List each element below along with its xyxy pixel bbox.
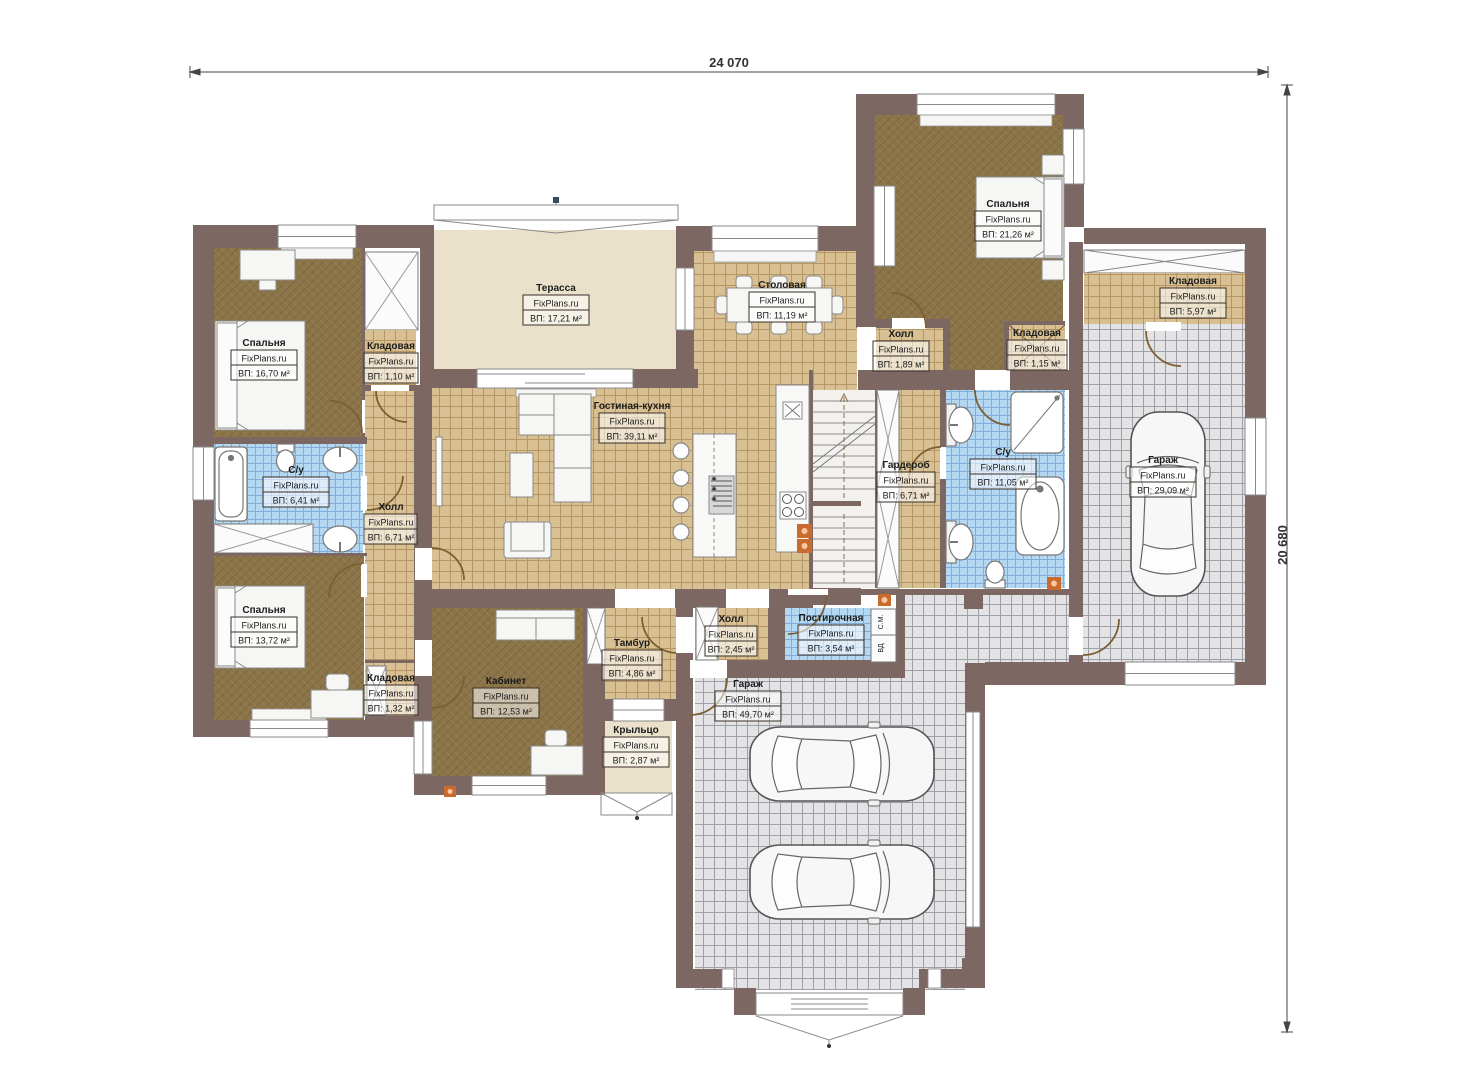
svg-text:ВП: 12,53 м²: ВП: 12,53 м² (480, 707, 532, 717)
svg-text:FixPlans.ru: FixPlans.ru (368, 518, 413, 528)
svg-text:FixPlans.ru: FixPlans.ru (241, 354, 286, 364)
svg-text:ВП: 39,11 м²: ВП: 39,11 м² (606, 432, 657, 442)
svg-text:Тамбур: Тамбур (614, 637, 650, 649)
svg-text:FixPlans.ru: FixPlans.ru (985, 215, 1030, 225)
svg-text:ВП: 11,19 м²: ВП: 11,19 м² (756, 311, 807, 321)
svg-text:FixPlans.ru: FixPlans.ru (1170, 292, 1215, 302)
svg-text:ВП: 6,41 м²: ВП: 6,41 м² (273, 496, 320, 506)
svg-text:FixPlans.ru: FixPlans.ru (368, 357, 413, 367)
svg-text:ВП: 1,15 м²: ВП: 1,15 м² (1014, 359, 1061, 369)
svg-text:ВП: 17,21 м²: ВП: 17,21 м² (530, 314, 582, 324)
svg-text:FixPlans.ru: FixPlans.ru (368, 689, 413, 699)
svg-text:FixPlans.ru: FixPlans.ru (759, 296, 804, 306)
svg-text:Кладовая: Кладовая (367, 341, 415, 352)
svg-text:Гардероб: Гардероб (882, 459, 929, 471)
svg-text:24 070: 24 070 (709, 55, 749, 70)
svg-text:Холл: Холл (378, 502, 403, 513)
svg-text:FixPlans.ru: FixPlans.ru (980, 463, 1025, 473)
svg-text:ВП: 2,45 м²: ВП: 2,45 м² (708, 645, 755, 655)
svg-text:ВП: 3,54 м²: ВП: 3,54 м² (808, 644, 855, 654)
svg-text:Холл: Холл (718, 614, 743, 625)
svg-text:Спальня: Спальня (986, 199, 1029, 210)
svg-text:ВП: 13,72 м²: ВП: 13,72 м² (238, 636, 290, 646)
svg-text:FixPlans.ru: FixPlans.ru (1140, 471, 1185, 481)
svg-text:Спальня: Спальня (242, 605, 285, 616)
svg-text:Крыльцо: Крыльцо (613, 725, 659, 736)
svg-text:С.М.: С.М. (878, 615, 885, 630)
svg-text:ВП: 29,09 м²: ВП: 29,09 м² (1137, 486, 1189, 496)
svg-text:Кладовая: Кладовая (367, 673, 415, 684)
svg-text:С/у: С/у (288, 465, 304, 476)
svg-text:Кабинет: Кабинет (486, 675, 527, 687)
svg-text:ВП: 16,70 м²: ВП: 16,70 м² (238, 369, 290, 379)
svg-text:ВП: 21,26 м²: ВП: 21,26 м² (982, 230, 1034, 240)
svg-text:FixPlans.ru: FixPlans.ru (241, 621, 286, 631)
svg-text:FixPlans.ru: FixPlans.ru (609, 654, 654, 664)
svg-text:FixPlans.ru: FixPlans.ru (483, 692, 528, 702)
svg-text:Спальня: Спальня (242, 338, 285, 349)
svg-text:ВП: 1,89 м²: ВП: 1,89 м² (878, 360, 925, 370)
svg-text:Постирочная: Постирочная (799, 613, 864, 624)
svg-text:FixPlans.ru: FixPlans.ru (725, 695, 770, 705)
svg-text:FixPlans.ru: FixPlans.ru (708, 630, 753, 640)
svg-text:ВП: 1,32 м²: ВП: 1,32 м² (368, 704, 415, 714)
svg-text:ВП: 49,70 м²: ВП: 49,70 м² (722, 710, 774, 720)
svg-text:20 680: 20 680 (1275, 525, 1290, 565)
svg-text:ВП: 1,10 м²: ВП: 1,10 м² (368, 372, 415, 382)
svg-text:FixPlans.ru: FixPlans.ru (1014, 344, 1059, 354)
svg-text:ВП: 11,05 м²: ВП: 11,05 м² (977, 478, 1028, 488)
svg-text:FixPlans.ru: FixPlans.ru (273, 481, 318, 491)
svg-text:С/у: С/у (995, 447, 1011, 458)
svg-text:Кладовая: Кладовая (1013, 328, 1061, 339)
svg-text:Терасса: Терасса (536, 283, 576, 294)
svg-text:ВП: 4,86 м²: ВП: 4,86 м² (609, 669, 656, 679)
svg-text:ВП: 6,71 м²: ВП: 6,71 м² (883, 491, 930, 501)
svg-text:Холл: Холл (888, 329, 913, 340)
svg-text:ВД: ВД (878, 643, 885, 653)
svg-text:Гараж: Гараж (733, 679, 764, 690)
svg-text:FixPlans.ru: FixPlans.ru (613, 741, 658, 751)
svg-text:FixPlans.ru: FixPlans.ru (878, 345, 923, 355)
svg-text:Столовая: Столовая (758, 280, 806, 291)
svg-text:FixPlans.ru: FixPlans.ru (808, 629, 853, 639)
svg-text:Гостиная-кухня: Гостиная-кухня (594, 401, 671, 412)
svg-text:FixPlans.ru: FixPlans.ru (883, 476, 928, 486)
svg-text:Кладовая: Кладовая (1169, 276, 1217, 287)
svg-text:Гараж: Гараж (1148, 455, 1179, 466)
svg-text:ВП: 6,71 м²: ВП: 6,71 м² (368, 533, 415, 543)
svg-text:FixPlans.ru: FixPlans.ru (533, 299, 578, 309)
svg-text:ВП: 5,97 м²: ВП: 5,97 м² (1170, 307, 1217, 317)
svg-text:ВП: 2,87 м²: ВП: 2,87 м² (613, 756, 660, 766)
svg-text:FixPlans.ru: FixPlans.ru (609, 417, 654, 427)
